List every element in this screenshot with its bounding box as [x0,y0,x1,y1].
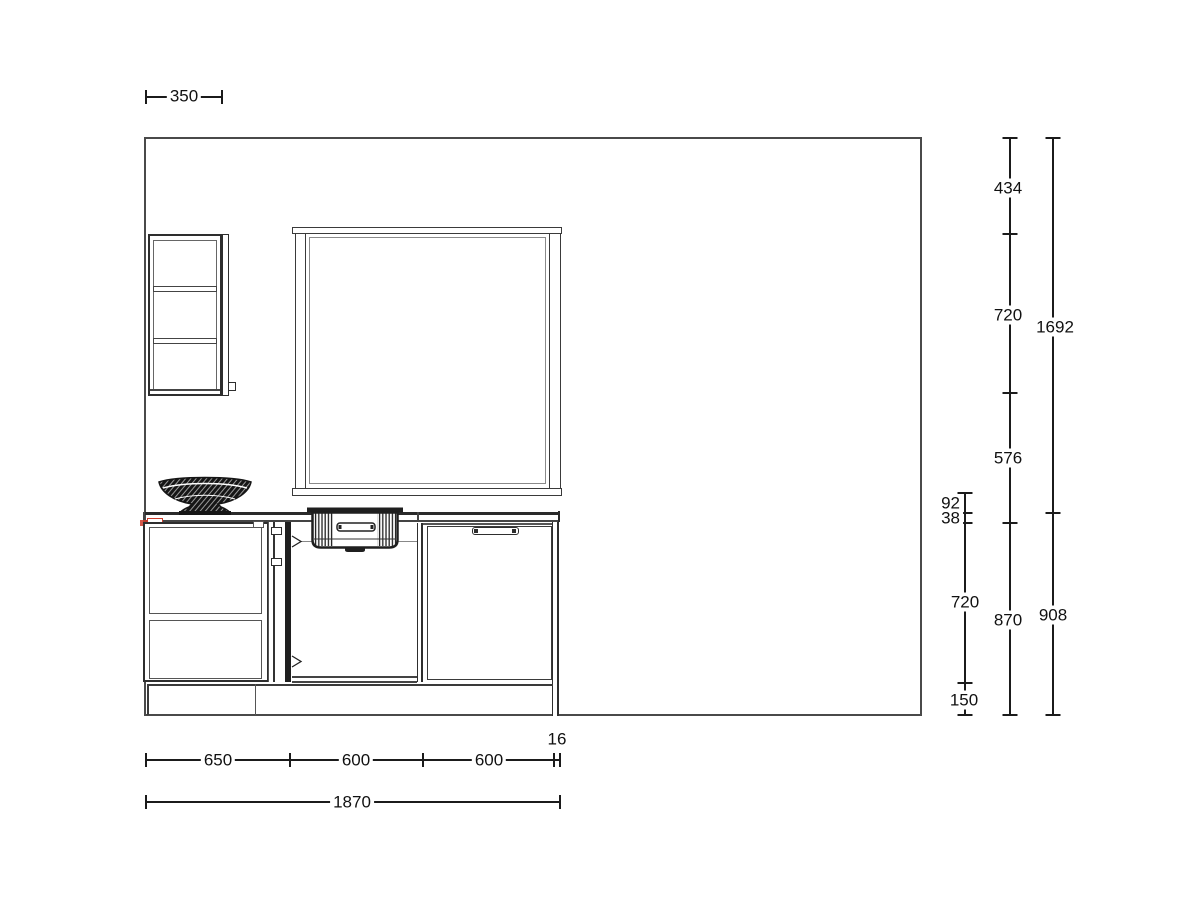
dim-tick [221,90,223,104]
dim-tick [559,753,561,767]
dim-tick [1046,512,1061,514]
bowl-foot [179,511,231,515]
dim-label-434: 434 [991,179,1025,198]
door-handle-cap [474,529,478,533]
dim-tick [145,753,147,767]
dim-tick [1046,714,1061,716]
drawer-front-top [149,527,262,614]
wall-cabinet-bottom-line [150,389,220,391]
window-head-board [292,227,562,234]
dim-tick [1003,392,1018,394]
wall-cabinet-door-edge [222,234,229,396]
dim-label-1870: 1870 [330,793,374,812]
door-hinge [271,527,282,535]
dim-tick [289,753,291,767]
door-swing-arrow-icon [291,655,303,668]
sink-drain [345,548,365,553]
dim-tick [958,682,973,684]
sink-hatch-right [377,513,396,546]
floor-line [144,714,922,716]
drawer-cabinet-hinge-plate [253,521,264,528]
plinth-seam [255,684,256,715]
window-left-jamb [295,233,306,489]
door-cabinet-top-line [423,523,553,525]
wall-cabinet-hinge [228,382,236,391]
open-door-front-line [273,522,275,682]
plinth-top-line [147,684,553,686]
dim-tick [1003,714,1018,716]
sink-slot-cap [371,525,374,529]
elevation-drawing-canvas: 350 650 600 600 16 1870 92 38 720 150 [0,0,1200,900]
dim-tick [145,795,147,809]
plinth-left-line [147,684,149,715]
wall-cabinet-shelf [153,286,217,292]
countertop-seam [417,512,419,522]
drawer-front-bottom [149,620,262,679]
wall-line-top [144,137,922,139]
dim-label-38: 38 [938,509,963,528]
fruit-bowl[interactable] [155,470,255,516]
wall-cabinet-shelf [153,338,217,344]
dim-label-600: 600 [339,751,373,770]
window-inner-sash [309,237,546,484]
sink-cabinet-bottom-line [292,676,417,678]
dim-label-1692: 1692 [1033,318,1077,337]
dim-label-908: 908 [1036,606,1070,625]
dim-tick [1003,522,1018,524]
dim-label-720: 720 [991,306,1025,325]
sink-slot-cap [339,525,342,529]
dim-tick [1046,137,1061,139]
dim-tick [1003,233,1018,235]
countertop-right-cap [558,511,560,522]
sink-overflow-slot [337,523,375,531]
dim-tick [958,714,973,716]
door-cabinet-door-front [427,526,552,680]
dim-label-870: 870 [991,611,1025,630]
wall-line-right [920,137,922,716]
door-handle-cap [512,529,516,533]
sink[interactable] [305,505,405,553]
door-swing-arrow-icon [291,535,303,548]
dim-tick [1003,137,1018,139]
dim-tick [145,90,147,104]
dim-label-350: 350 [167,87,201,106]
sink-hatch-left [314,513,333,546]
door-cabinet-right-gable [552,522,559,716]
sink-cabinet-right-gable [417,523,423,682]
dim-label-16: 16 [545,730,570,749]
dim-label-150: 150 [947,691,981,710]
dim-label-600: 600 [472,751,506,770]
wall-cabinet-interior [153,240,217,390]
door-hinge [271,558,282,566]
window-sill-board [292,488,562,496]
dim-tick [422,753,424,767]
dimension-line [1052,138,1054,716]
dim-label-720: 720 [948,593,982,612]
dim-label-576: 576 [991,449,1025,468]
dim-tick [553,753,555,767]
dim-tick [559,795,561,809]
dim-label-650: 650 [201,751,235,770]
sink-cabinet-bottom-line [292,681,417,683]
window-right-jamb [549,233,561,489]
open-door-back-line [268,522,269,682]
